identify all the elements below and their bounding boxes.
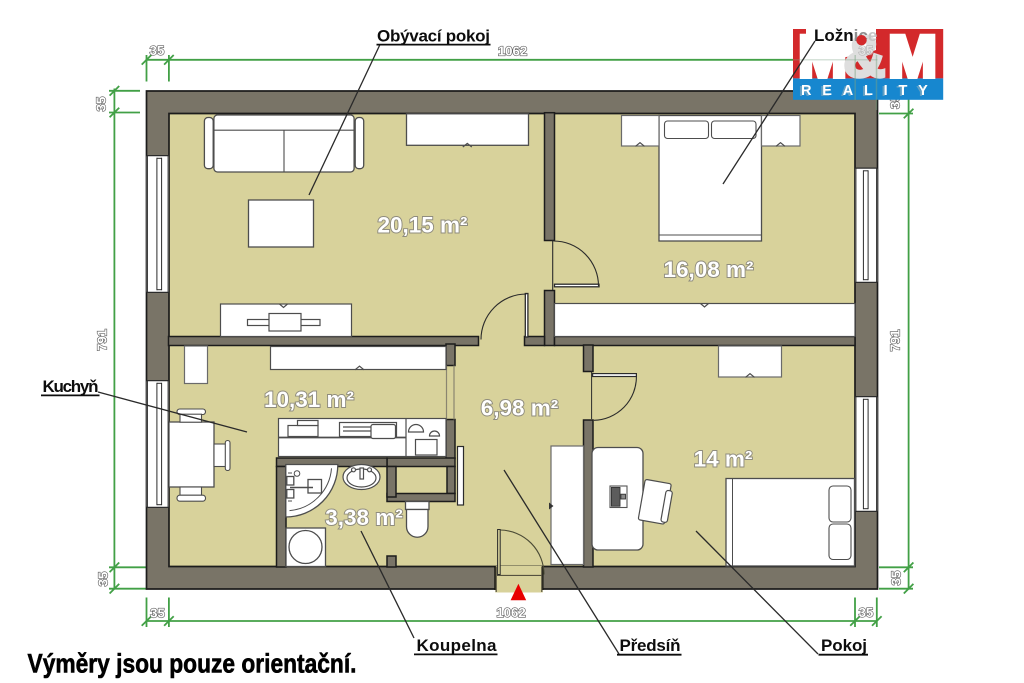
svg-text:Kuchyň: Kuchyň bbox=[43, 377, 99, 396]
svg-text:14 m²: 14 m² bbox=[694, 447, 753, 472]
svg-text:791: 791 bbox=[888, 329, 903, 351]
svg-text:Koupelna: Koupelna bbox=[417, 636, 498, 655]
svg-text:Pokoj: Pokoj bbox=[821, 636, 867, 655]
svg-text:35: 35 bbox=[150, 43, 165, 58]
svg-text:35: 35 bbox=[94, 97, 109, 112]
svg-text:Obývací pokoj: Obývací pokoj bbox=[377, 27, 490, 46]
svg-text:10,31 m²: 10,31 m² bbox=[264, 387, 355, 412]
svg-text:35: 35 bbox=[889, 571, 904, 586]
svg-text:16,08 m²: 16,08 m² bbox=[663, 257, 754, 282]
svg-text:Výměry jsou pouze orientační.: Výměry jsou pouze orientační. bbox=[28, 649, 357, 679]
svg-text:6,98 m²: 6,98 m² bbox=[481, 396, 559, 421]
svg-text:Předsíň: Předsíň bbox=[620, 636, 681, 655]
svg-text:M: M bbox=[888, 25, 936, 90]
svg-text:3,38 m²: 3,38 m² bbox=[325, 505, 403, 530]
svg-text:1062: 1062 bbox=[496, 605, 525, 620]
svg-text:20,15 m²: 20,15 m² bbox=[377, 213, 468, 238]
svg-text:1062: 1062 bbox=[498, 44, 527, 59]
svg-text:35: 35 bbox=[150, 606, 165, 621]
svg-text:791: 791 bbox=[95, 329, 110, 351]
svg-text:35: 35 bbox=[859, 605, 874, 620]
svg-text:Ložnice: Ložnice bbox=[814, 26, 877, 45]
svg-text:REALITY: REALITY bbox=[801, 83, 939, 99]
svg-text:35: 35 bbox=[96, 572, 111, 587]
